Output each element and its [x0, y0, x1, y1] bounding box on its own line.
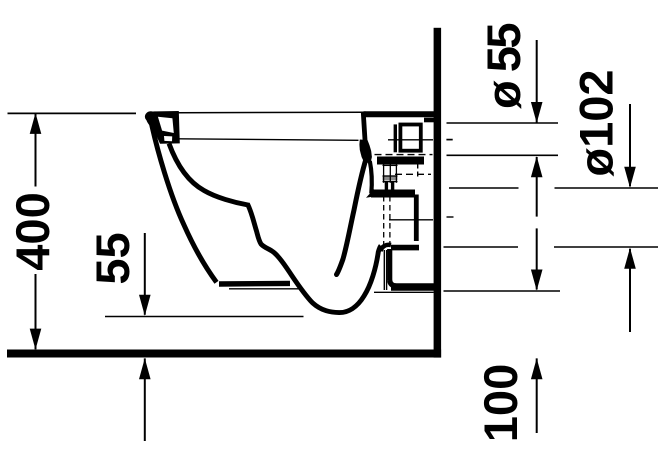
svg-text:55: 55: [86, 232, 139, 284]
svg-text:ø102: ø102: [570, 69, 623, 176]
svg-text:400: 400: [6, 192, 59, 270]
svg-text:100: 100: [474, 364, 527, 442]
svg-text:ø 55: ø 55: [477, 24, 530, 109]
